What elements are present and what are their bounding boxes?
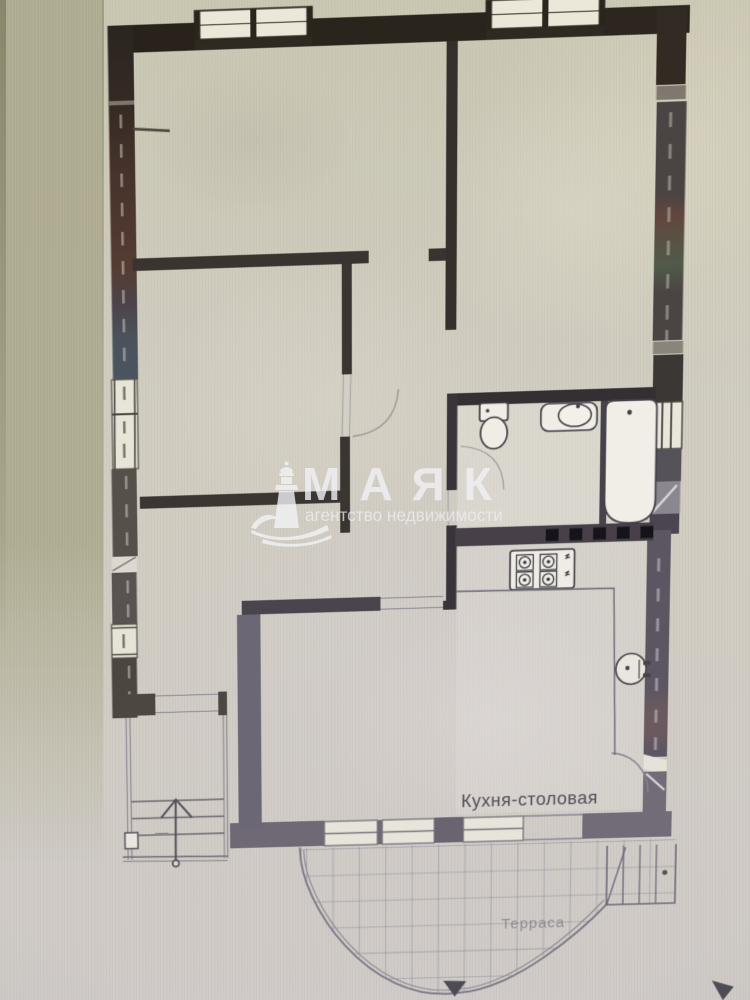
svg-text:агентство недвижимости: агентство недвижимости <box>305 505 503 525</box>
svg-text:МАЯК: МАЯК <box>302 458 511 510</box>
